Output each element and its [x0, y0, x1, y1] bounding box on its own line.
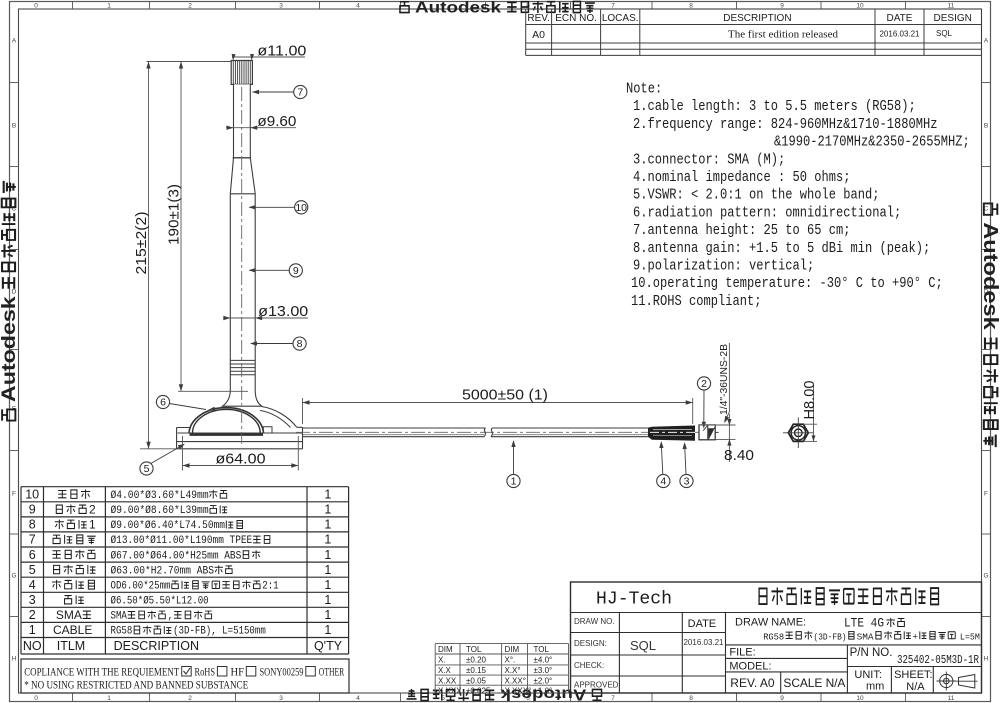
svg-text:215±2(2): 215±2(2) — [133, 211, 150, 274]
svg-text:CHECK:: CHECK: — [574, 661, 604, 670]
svg-text:X.XX: X.XX — [438, 676, 457, 685]
svg-text:4.nominal impedance : 50 ohms;: 4.nominal impedance : 50 ohms; — [633, 169, 851, 186]
svg-text:RG58: RG58 — [763, 632, 784, 642]
svg-text:Ø13.00*Ø11.00*L190mm TPEE: Ø13.00*Ø11.00*L190mm TPEE — [111, 535, 253, 547]
svg-text:DESIGN: DESIGN — [934, 13, 972, 24]
svg-text:DESIGN:: DESIGN: — [574, 639, 607, 648]
svg-text:±0.05: ±0.05 — [466, 676, 487, 685]
svg-text:B: B — [12, 123, 16, 130]
svg-text:3: 3 — [279, 3, 283, 10]
svg-text:10: 10 — [295, 202, 307, 214]
svg-text:DIM: DIM — [438, 645, 453, 654]
svg-text:ø64.00: ø64.00 — [216, 451, 266, 468]
svg-text:2: 2 — [188, 3, 192, 10]
svg-text:X.X: X.X — [438, 666, 452, 675]
svg-text:9.polarization: vertical;: 9.polarization: vertical; — [633, 258, 814, 275]
svg-text:X°.: X°. — [505, 655, 516, 664]
svg-text:DATE: DATE — [887, 13, 913, 24]
svg-text:DRAW NAME:: DRAW NAME: — [735, 617, 806, 629]
svg-text:8.40: 8.40 — [724, 447, 754, 464]
svg-text:10: 10 — [25, 488, 39, 502]
svg-text:8: 8 — [689, 695, 693, 702]
svg-text:7: 7 — [611, 3, 615, 10]
svg-text:2: 2 — [701, 378, 707, 390]
svg-text:(3D-FB), L=5150mm: (3D-FB), L=5150mm — [173, 626, 266, 638]
svg-text:D: D — [12, 289, 17, 296]
svg-text:F: F — [984, 491, 988, 498]
svg-text:9: 9 — [780, 3, 784, 10]
svg-text:TOL: TOL — [466, 645, 482, 654]
svg-text:325402-05M3D-1R: 325402-05M3D-1R — [897, 653, 979, 667]
svg-text:8: 8 — [297, 338, 303, 350]
svg-text:9: 9 — [29, 503, 36, 517]
svg-text:&1990-2170MHz&2350-2655MHZ;: &1990-2170MHz&2350-2655MHZ; — [774, 134, 970, 151]
svg-text:LTE 4G: LTE 4G — [844, 617, 884, 631]
svg-text:7: 7 — [29, 533, 36, 547]
svg-text:±1.0°: ±1.0° — [534, 687, 553, 696]
svg-text:8: 8 — [689, 3, 693, 10]
svg-text:2: 2 — [29, 608, 36, 622]
svg-text:4: 4 — [660, 476, 666, 488]
svg-text:1: 1 — [324, 563, 331, 577]
svg-text:B: B — [984, 123, 988, 130]
svg-text:8: 8 — [29, 518, 36, 532]
svg-text:190±1(3): 190±1(3) — [166, 184, 183, 245]
svg-text:H: H — [12, 656, 17, 663]
svg-text:N/A: N/A — [906, 681, 925, 693]
svg-text:REV.: REV. — [527, 13, 549, 24]
svg-text:5: 5 — [144, 463, 150, 475]
svg-text:X.XXX: X.XXX — [438, 687, 462, 696]
svg-text:OD6.00*25mm: OD6.00*25mm — [111, 580, 171, 592]
svg-text:2.frequency range: 824-960MHz&: 2.frequency range: 824-960MHz&1710-1880M… — [633, 116, 938, 133]
svg-text:4: 4 — [29, 578, 36, 592]
svg-text:NO: NO — [23, 639, 42, 653]
svg-text:4: 4 — [356, 3, 360, 10]
svg-text:7: 7 — [611, 695, 615, 702]
svg-text:The first edition released: The first edition released — [728, 29, 839, 41]
svg-text:1/4"-36UNS-2B: 1/4"-36UNS-2B — [718, 344, 730, 415]
svg-text:P/N NO.: P/N NO. — [850, 647, 893, 659]
svg-text:10.operating temperature: -30°: 10.operating temperature: -30° C to +90°… — [631, 275, 943, 292]
svg-text:1: 1 — [324, 608, 331, 622]
svg-text:1: 1 — [324, 518, 331, 532]
svg-text:COPLIANCE WITH THE REQUIEMENT: COPLIANCE WITH THE REQUIEMENT — [24, 667, 179, 679]
svg-text:7.antenna height: 25 to 65 cm;: 7.antenna height: 25 to 65 cm; — [633, 222, 851, 239]
svg-text:3.connector: SMA (M);: 3.connector: SMA (M); — [633, 151, 785, 168]
svg-text:ø11.00: ø11.00 — [257, 43, 306, 60]
svg-text:1.cable length: 3 to 5.5 meter: 1.cable length: 3 to 5.5 meters (RG58); — [633, 98, 916, 115]
svg-text:3: 3 — [279, 695, 283, 702]
svg-text:SONY00259: SONY00259 — [260, 667, 304, 679]
svg-text:Ø4.00*Ø3.60*L49mm: Ø4.00*Ø3.60*L49mm — [111, 490, 209, 502]
svg-text:SHEET:: SHEET: — [894, 669, 933, 681]
svg-text:mm: mm — [866, 681, 884, 693]
svg-text:2: 2 — [188, 695, 192, 702]
svg-text:TOL: TOL — [534, 645, 550, 654]
svg-text:±4.0°: ±4.0° — [534, 655, 553, 664]
svg-text:Ø67.00*Ø64.00*H25mm ABS: Ø67.00*Ø64.00*H25mm ABS — [111, 550, 242, 562]
svg-text:,: , — [168, 611, 174, 623]
svg-text:Ø9.00*Ø8.60*L39mm: Ø9.00*Ø8.60*L39mm — [111, 505, 209, 517]
svg-text:6: 6 — [29, 548, 36, 562]
svg-text:±2.0°: ±2.0° — [534, 676, 553, 685]
svg-text:1: 1 — [324, 548, 331, 562]
svg-text:RoHS: RoHS — [195, 667, 216, 679]
svg-text:HJ-Tech: HJ-Tech — [596, 590, 672, 610]
svg-text:UNIT:: UNIT: — [854, 669, 882, 681]
svg-text:Autodesk: Autodesk — [979, 222, 1000, 331]
svg-text:FILE:: FILE: — [729, 647, 755, 659]
svg-text:3: 3 — [684, 476, 690, 488]
svg-text:ECN NO.: ECN NO. — [555, 13, 597, 24]
svg-text:2:1: 2:1 — [262, 580, 279, 592]
svg-text:* NO USING RESTRICTED AND BANN: * NO USING RESTRICTED AND BANNED SUBSTAN… — [24, 680, 248, 692]
svg-text:DESCRIPTION: DESCRIPTION — [723, 13, 791, 24]
svg-text:X.: X. — [438, 655, 446, 664]
svg-text:ø13.00: ø13.00 — [258, 303, 308, 320]
svg-text:1: 1 — [324, 533, 331, 547]
svg-text:1: 1 — [324, 593, 331, 607]
svg-text:11: 11 — [948, 3, 955, 10]
svg-text:OTHER: OTHER — [319, 667, 345, 679]
svg-text:1: 1 — [107, 695, 111, 702]
svg-text:+: + — [913, 632, 918, 642]
svg-text:Note:: Note: — [626, 81, 662, 98]
svg-text:SMA: SMA — [56, 608, 82, 622]
svg-text:L=5M: L=5M — [960, 632, 980, 642]
svg-text:2016.03.21: 2016.03.21 — [683, 638, 724, 647]
svg-text:11: 11 — [948, 695, 955, 702]
svg-text:DIM: DIM — [505, 645, 520, 654]
svg-text:X.X°: X.X° — [505, 666, 521, 675]
svg-text:HF: HF — [231, 667, 245, 679]
svg-text:±0.15: ±0.15 — [466, 666, 487, 675]
svg-text:(3D-FB): (3D-FB) — [814, 632, 847, 642]
svg-text:1: 1 — [324, 503, 331, 517]
svg-text:6: 6 — [160, 397, 166, 409]
svg-text:SQL: SQL — [936, 29, 953, 38]
svg-text:Q'TY: Q'TY — [314, 639, 343, 653]
svg-text:H8.00: H8.00 — [802, 381, 818, 420]
svg-text:6.radiation pattern: omnidirec: 6.radiation pattern: omnidirectional; — [633, 204, 901, 221]
svg-text:9: 9 — [293, 265, 299, 277]
svg-text:4: 4 — [356, 695, 360, 702]
svg-text:ITLM: ITLM — [57, 639, 85, 653]
svg-text:1: 1 — [29, 623, 36, 637]
svg-text:Ø63.00*H2.70mm ABS: Ø63.00*H2.70mm ABS — [111, 565, 215, 577]
svg-text:DRAW NO.: DRAW NO. — [574, 617, 615, 626]
svg-text:2: 2 — [89, 503, 96, 517]
svg-text:0: 0 — [34, 3, 38, 10]
svg-text:H: H — [984, 656, 989, 663]
svg-text:1: 1 — [324, 623, 331, 637]
svg-text:Autodesk: Autodesk — [0, 296, 20, 402]
svg-text:SMA: SMA — [111, 611, 128, 623]
svg-text:X.XXX°: X.XXX° — [505, 687, 532, 696]
svg-text:±3.0°: ±3.0° — [534, 666, 553, 675]
svg-text:Autodesk: Autodesk — [415, 0, 501, 16]
svg-text:A: A — [12, 38, 17, 45]
svg-text:SMA: SMA — [857, 632, 875, 642]
svg-text:10: 10 — [856, 695, 864, 702]
svg-text:1: 1 — [107, 3, 111, 10]
svg-text:X.XX°: X.XX° — [505, 676, 526, 685]
svg-text:DATE: DATE — [688, 618, 717, 630]
svg-text:1: 1 — [324, 488, 331, 502]
svg-text:10: 10 — [856, 3, 864, 10]
svg-text:G: G — [983, 573, 988, 580]
svg-text:DESCRIPTION: DESCRIPTION — [114, 639, 199, 653]
svg-text:REV. A0: REV. A0 — [730, 676, 775, 690]
svg-text:SCALE N/A: SCALE N/A — [783, 676, 845, 690]
svg-text:1: 1 — [324, 578, 331, 592]
svg-text:A: A — [984, 38, 989, 45]
svg-text:7: 7 — [297, 87, 303, 99]
svg-text:±0.20: ±0.20 — [466, 655, 487, 664]
svg-text:LOCAS.: LOCAS. — [602, 13, 639, 24]
svg-text:0: 0 — [34, 695, 38, 702]
svg-text:F: F — [12, 491, 16, 498]
svg-text:5: 5 — [29, 563, 36, 577]
svg-text:±0.025: ±0.025 — [466, 687, 491, 696]
svg-text:SQL: SQL — [630, 638, 656, 653]
svg-text:5.VSWR: < 2.0:1 on the whole b: 5.VSWR: < 2.0:1 on the whole band; — [633, 187, 880, 204]
svg-text:9: 9 — [780, 695, 784, 702]
svg-text:Ø9.00*Ø6.40*L74.50mm: Ø9.00*Ø6.40*L74.50mm — [111, 520, 226, 532]
svg-text:1: 1 — [511, 476, 517, 488]
svg-text:G: G — [11, 573, 16, 580]
svg-text:2016.03.21: 2016.03.21 — [879, 30, 920, 39]
svg-text:ø9.60: ø9.60 — [257, 113, 296, 130]
svg-text:8.antenna gain: +1.5 to 5 dBi: 8.antenna gain: +1.5 to 5 dBi min (peak)… — [633, 240, 930, 257]
svg-text:5000±50 (1): 5000±50 (1) — [462, 387, 548, 404]
svg-text:1: 1 — [89, 518, 96, 532]
svg-text:3: 3 — [29, 593, 36, 607]
svg-text:APPROVED:: APPROVED: — [574, 681, 621, 690]
svg-text:MODEL:: MODEL: — [729, 661, 771, 673]
svg-text:Ø6.50*Ø5.50*L12.00: Ø6.50*Ø5.50*L12.00 — [111, 596, 209, 608]
svg-text:A0: A0 — [532, 29, 545, 41]
svg-text:RG58: RG58 — [111, 626, 133, 638]
svg-text:11.ROHS compliant;: 11.ROHS compliant; — [631, 293, 762, 310]
svg-text:CABLE: CABLE — [53, 623, 92, 637]
